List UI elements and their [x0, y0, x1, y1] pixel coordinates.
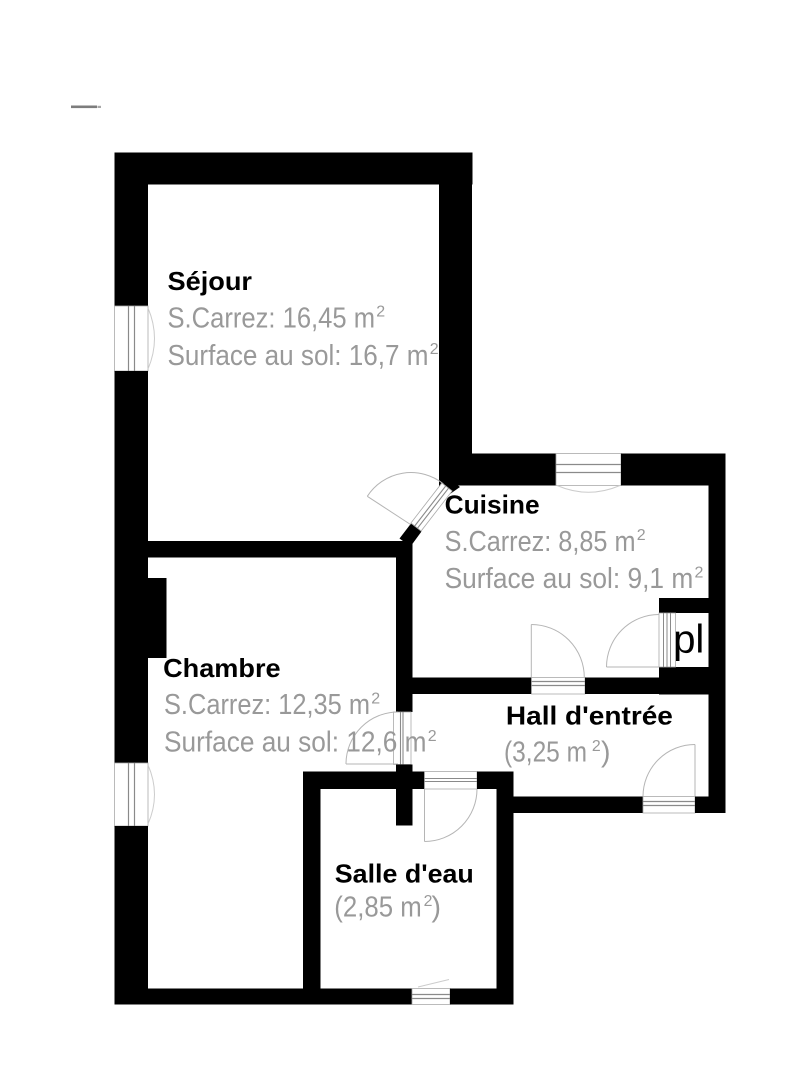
svg-text:2: 2 — [592, 738, 601, 755]
svg-text:2: 2 — [376, 304, 385, 321]
svg-text:2: 2 — [637, 527, 646, 544]
svg-text:S.Carrez: 16,45 m: S.Carrez: 16,45 m — [168, 303, 376, 335]
svg-text:pl: pl — [673, 617, 704, 661]
svg-text:(2,85 m: (2,85 m — [334, 892, 421, 924]
svg-text:): ) — [432, 892, 442, 924]
svg-text:(3,25 m: (3,25 m — [504, 736, 587, 768]
svg-text:2: 2 — [695, 564, 704, 581]
svg-text:Hall d'entrée: Hall d'entrée — [506, 700, 673, 730]
svg-text:Séjour: Séjour — [168, 266, 253, 296]
svg-text:Surface au sol: 9,1 m: Surface au sol: 9,1 m — [445, 563, 694, 595]
svg-text:Salle d'eau: Salle d'eau — [335, 858, 474, 888]
svg-text:Chambre: Chambre — [163, 653, 281, 683]
svg-text:Surface au sol: 16,7 m: Surface au sol: 16,7 m — [168, 340, 429, 372]
svg-text:S.Carrez: 8,85 m: S.Carrez: 8,85 m — [445, 526, 636, 558]
svg-text:S.Carrez: 12,35 m: S.Carrez: 12,35 m — [164, 689, 370, 721]
svg-text:): ) — [601, 736, 611, 768]
svg-text:Surface au sol: 12,6 m: Surface au sol: 12,6 m — [164, 727, 427, 759]
svg-text:2: 2 — [371, 690, 380, 707]
svg-text:Cuisine: Cuisine — [445, 489, 540, 519]
svg-text:2: 2 — [430, 341, 439, 358]
svg-text:2: 2 — [428, 728, 437, 745]
